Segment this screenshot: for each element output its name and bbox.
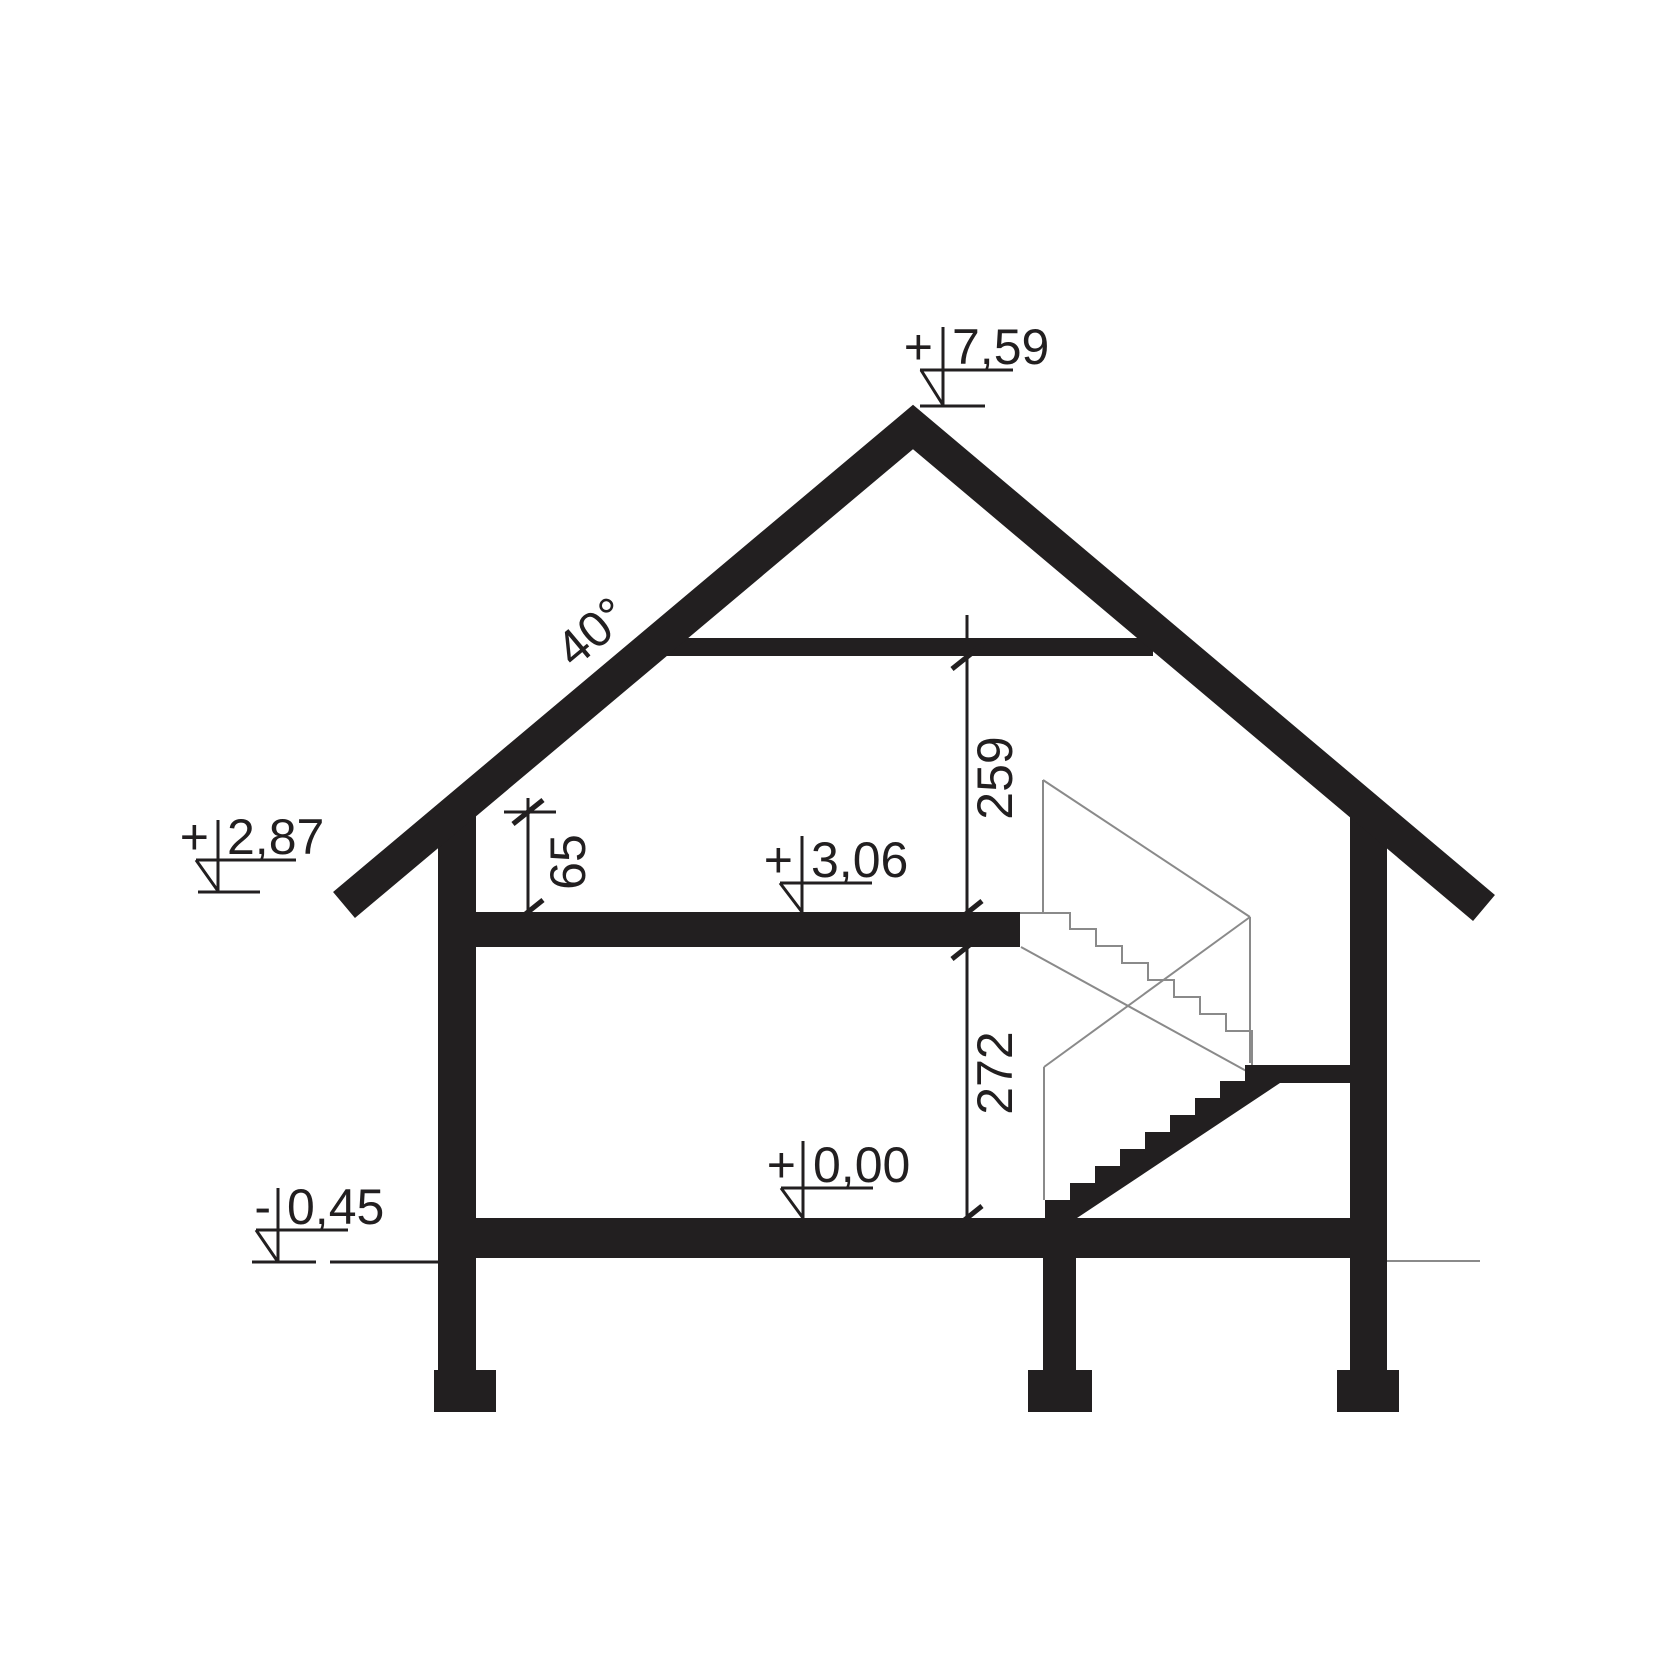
stair-outline-cross-b [1044,917,1250,1067]
stair-lower-flight [1045,1081,1283,1218]
dim-text-ground-floor-height: 272 [967,1031,1023,1114]
collar-ceiling [663,638,1153,656]
elevation-sign-attic-floor: + [764,832,793,888]
house-section-svg: + 7,59 + 2,87 + 3,06 + 0,00 - 0,45 65 25… [0,0,1680,1680]
elevation-marker-left-eave: + 2,87 [180,809,325,892]
dim-text-attic-height: 259 [967,736,1023,819]
right-exterior-wall [1350,810,1387,1370]
dim-text-knee-wall: 65 [540,834,596,890]
elevation-value-terrain: 0,45 [287,1179,384,1235]
elevation-value-attic-floor: 3,06 [811,832,908,888]
elevation-sign-ridge: + [904,319,933,375]
elevation-marker-attic-floor: + 3,06 [764,832,909,912]
elevation-marker-ridge: + 7,59 [904,319,1050,406]
elevation-value-left-eave: 2,87 [227,809,324,865]
stair-outline-hypotenuse [1043,780,1250,917]
elevation-marker-ground-floor: + 0,00 [767,1137,911,1218]
stair-outline-upper-flight [1019,780,1270,1200]
left-exterior-wall [438,812,476,1370]
elevation-marker-terrain: - 0,45 [252,1179,384,1262]
roof-rafters [344,427,1484,908]
elevation-sign-terrain: - [254,1179,271,1235]
ground-floor-slab [438,1218,1387,1258]
elevation-value-ridge: 7,59 [952,319,1049,375]
elevation-sign-ground-floor: + [767,1137,796,1193]
elevation-sign-left-eave: + [180,809,209,865]
elevation-value-ground-floor: 0,00 [813,1137,910,1193]
section-drawing-canvas: + 7,59 + 2,87 + 3,06 + 0,00 - 0,45 65 25… [0,0,1680,1680]
stair-outline-steps [1019,913,1252,1065]
middle-footing [1028,1370,1092,1412]
right-footing [1337,1370,1399,1412]
stair-landing [1245,1065,1352,1083]
left-footing [434,1370,496,1412]
stair-outline-stringer [1021,947,1270,1084]
marker-flag [921,370,943,405]
